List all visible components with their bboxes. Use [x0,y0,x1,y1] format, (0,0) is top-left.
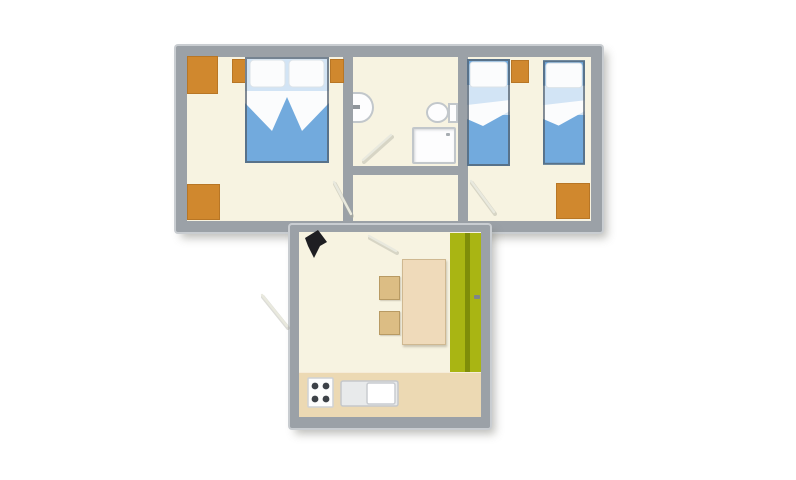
floor-plan [0,0,796,480]
door-swing-overlay [0,0,796,480]
